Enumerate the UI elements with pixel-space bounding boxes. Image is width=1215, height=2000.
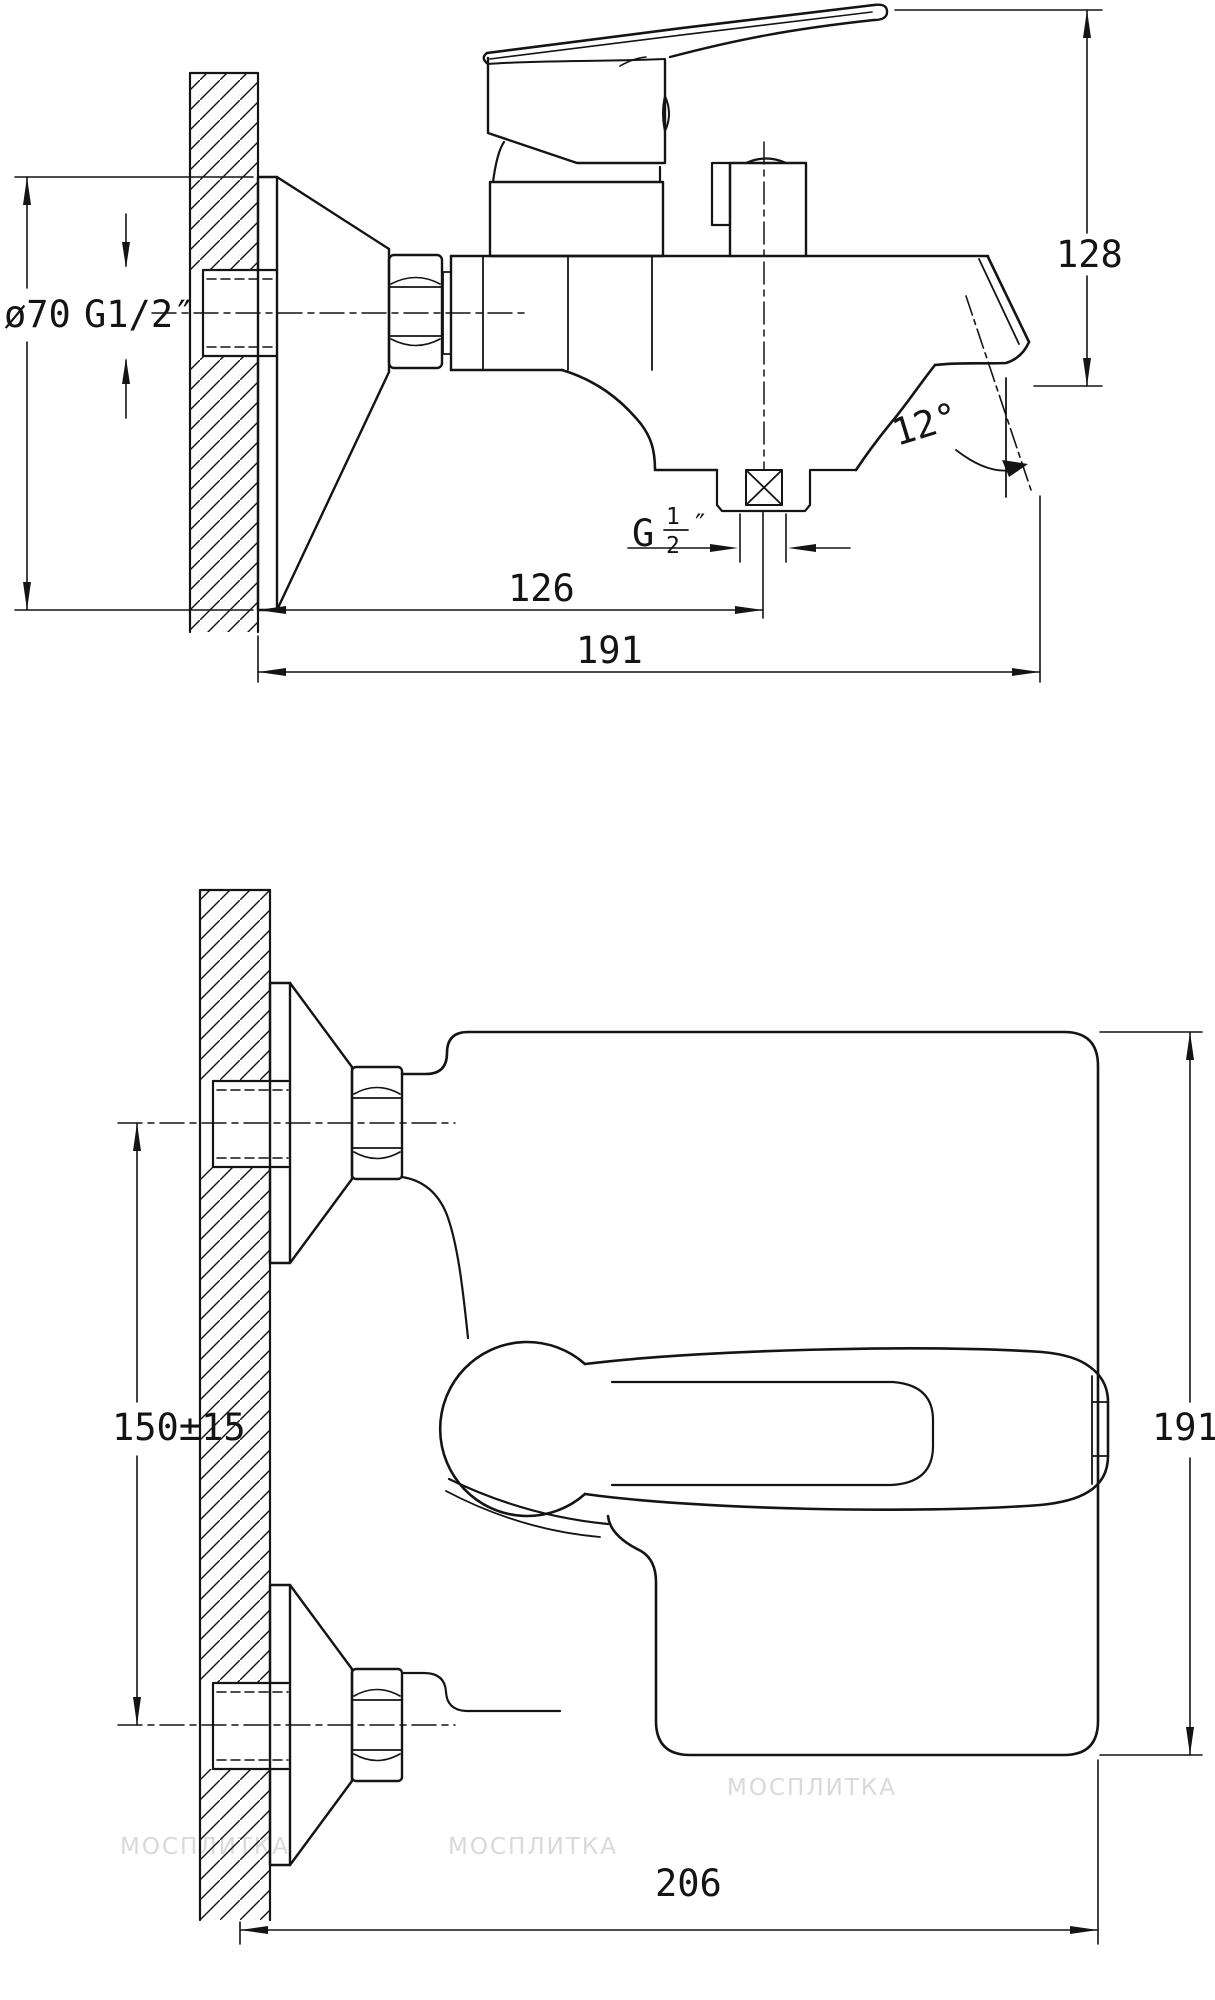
watermark-text: МОСПЛИТКА — [448, 1834, 618, 1860]
mixer-body — [451, 256, 988, 370]
dim-label-wall-to-tip: 191 — [576, 629, 643, 672]
hex-nut — [389, 255, 451, 368]
arrowhead-left — [258, 668, 286, 676]
dim-label-height: 128 — [1056, 233, 1123, 276]
front-view-dimensions: 150±15 191 206 — [112, 1032, 1215, 1944]
wall-hatch — [200, 890, 270, 1920]
dim-spout-angle: 12° — [887, 296, 1031, 497]
arrowhead-down — [23, 582, 31, 610]
lever-handle — [484, 5, 887, 66]
arrowhead-down — [1186, 1727, 1194, 1755]
arrowhead-left — [240, 1926, 268, 1934]
dim-front-height: 191 — [1100, 1032, 1215, 1755]
handle-assembly — [484, 5, 887, 256]
arrowhead-left — [258, 606, 286, 614]
arrowhead-up — [122, 358, 130, 384]
wall-section — [200, 890, 270, 1920]
escutcheon-cone — [258, 177, 389, 610]
diverter-knob — [712, 159, 806, 257]
dim-overall-height: 128 — [895, 10, 1123, 386]
lever-top-face — [612, 1382, 933, 1485]
watermark-text: МОСПЛИТКА — [727, 1775, 897, 1801]
arrowhead-down — [1083, 358, 1091, 386]
wall-section — [190, 73, 258, 632]
dim-outlet-thread: G 1 2 ″ — [628, 504, 850, 562]
lever-handle-front — [440, 1342, 1108, 1516]
spout — [935, 257, 1029, 365]
dim-label-wall-thread: G1/2″ — [84, 293, 195, 336]
outlet-thread-cross — [746, 470, 782, 505]
dim-label-outlet-num: 1 — [666, 504, 680, 530]
dim-label-outlet-den: 2 — [666, 533, 680, 559]
arrowhead-down — [122, 242, 130, 268]
dim-label-outlet-g: G — [632, 512, 654, 555]
handle-grip-circle — [440, 1342, 585, 1516]
wall-hatch — [190, 73, 258, 632]
shower-outlet — [562, 142, 935, 511]
front-view: 150±15 191 206 — [112, 890, 1215, 1944]
arrowhead-up — [1186, 1032, 1194, 1060]
mixer-body-front — [402, 1032, 1098, 1755]
side-view-dimensions: ø70 G1/2″ 128 — [4, 10, 1123, 682]
dim-wall-to-outlet: 126 — [258, 512, 763, 682]
side-view: ø70 G1/2″ 128 — [4, 5, 1123, 682]
cartridge-collar — [490, 182, 663, 256]
dim-label-diameter: ø70 — [4, 293, 71, 336]
handle-housing — [488, 58, 665, 163]
arrowhead-right — [1012, 668, 1040, 676]
body-lower-shelf — [402, 1673, 560, 1711]
arrowhead-left — [788, 544, 816, 552]
arrowhead-down — [133, 1697, 141, 1725]
arrowhead-up — [23, 177, 31, 205]
dim-label-wall-to-outlet: 126 — [508, 567, 575, 610]
dim-wall-thread: G1/2″ — [84, 214, 195, 418]
technical-drawing-page: МОСПЛИТКА МОСПЛИТКА МОСПЛИТКА — [0, 0, 1215, 2000]
body-upper-flank — [402, 1177, 468, 1338]
dim-overall-depth: 206 — [240, 1760, 1098, 1944]
arrowhead-right — [735, 606, 763, 614]
dim-label-outlet-inch: ″ — [692, 509, 708, 540]
dim-label-angle: 12° — [887, 394, 963, 455]
dim-label-front-height: 191 — [1152, 1406, 1215, 1449]
arrowhead-right — [1070, 1926, 1098, 1934]
arrowhead-right — [710, 544, 738, 552]
dim-label-depth: 206 — [655, 1862, 722, 1905]
arrowhead-up — [133, 1123, 141, 1151]
arrowhead-up — [1083, 10, 1091, 38]
spout-under-curve-inner — [446, 1491, 600, 1537]
bath-mixer-dimension-drawing: МОСПЛИТКА МОСПЛИТКА МОСПЛИТКА — [0, 0, 1215, 2000]
dim-label-inlet-spacing: 150±15 — [112, 1406, 246, 1449]
